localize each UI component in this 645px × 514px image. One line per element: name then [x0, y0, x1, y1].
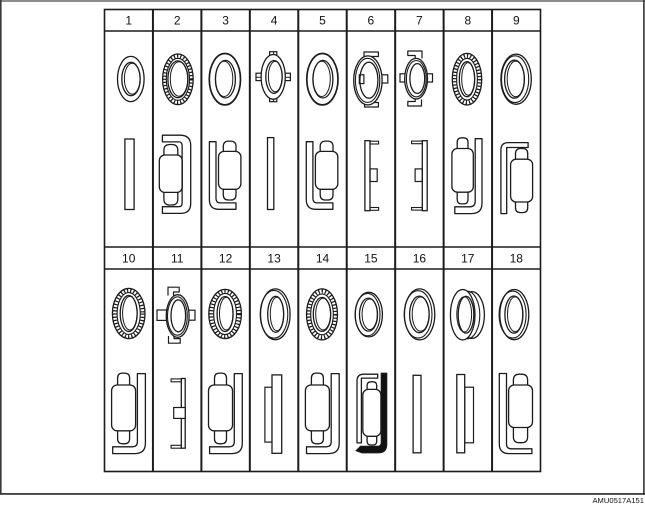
svg-text:AMU0517A151: AMU0517A151: [592, 496, 644, 505]
svg-text:15: 15: [364, 251, 378, 265]
svg-text:4: 4: [271, 14, 278, 28]
svg-text:3: 3: [222, 14, 229, 28]
svg-text:1: 1: [125, 14, 132, 28]
svg-text:11: 11: [171, 251, 184, 265]
svg-text:2: 2: [174, 14, 181, 28]
svg-text:14: 14: [316, 251, 330, 265]
svg-text:8: 8: [464, 14, 471, 28]
svg-text:18: 18: [510, 251, 524, 265]
svg-text:6: 6: [368, 14, 375, 28]
svg-text:16: 16: [413, 251, 427, 265]
svg-text:17: 17: [461, 251, 475, 265]
svg-text:12: 12: [219, 251, 233, 265]
svg-text:5: 5: [319, 14, 326, 28]
svg-text:13: 13: [267, 251, 281, 265]
svg-text:10: 10: [122, 251, 136, 265]
svg-text:7: 7: [416, 14, 423, 28]
svg-text:9: 9: [513, 14, 520, 28]
